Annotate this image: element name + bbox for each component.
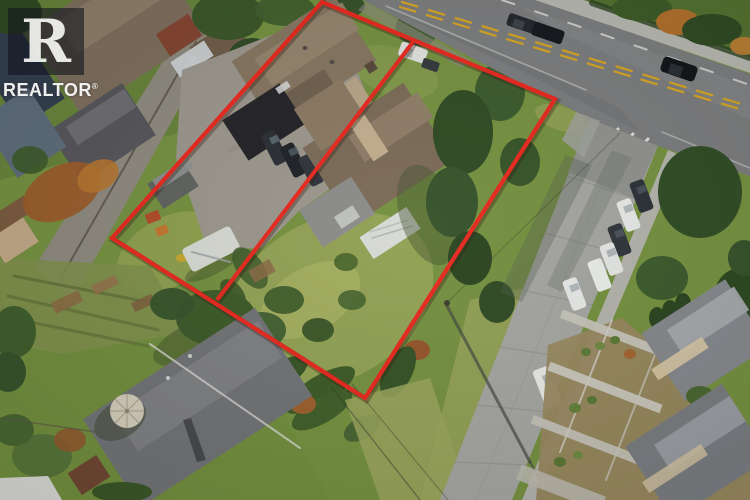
scene-svg (0, 0, 750, 500)
tree (12, 146, 48, 174)
shrub (595, 342, 605, 350)
roof-vent (166, 376, 170, 380)
evergreen-tree (658, 146, 742, 238)
tree (150, 288, 194, 320)
roof-vent (303, 46, 308, 50)
shrub (587, 396, 597, 404)
umbrella-center (125, 409, 129, 413)
realtor-logo-letter: R (21, 12, 71, 72)
evergreen-tree (426, 167, 478, 237)
shrub (334, 253, 358, 271)
shrub (554, 457, 566, 467)
registered-trademark-icon: ® (92, 82, 98, 91)
shrub (610, 336, 620, 344)
shrub (569, 403, 581, 413)
shrub (264, 286, 304, 314)
shrub-autumn (624, 349, 636, 359)
bush-autumn (54, 428, 86, 452)
shrub (302, 318, 334, 342)
shrub (573, 451, 583, 459)
tree (636, 256, 688, 300)
realtor-brand-text: REALTOR® (3, 80, 98, 101)
aerial-photo: R REALTOR® (0, 0, 750, 500)
realtor-logo-square: R (8, 8, 84, 75)
evergreen-tree (433, 90, 493, 174)
roof-vent (188, 354, 192, 358)
roof-vent (330, 60, 335, 64)
scene-layer (0, 0, 750, 500)
realtor-watermark: R REALTOR® (8, 8, 84, 75)
shrub (581, 348, 591, 356)
shrub (338, 290, 366, 310)
